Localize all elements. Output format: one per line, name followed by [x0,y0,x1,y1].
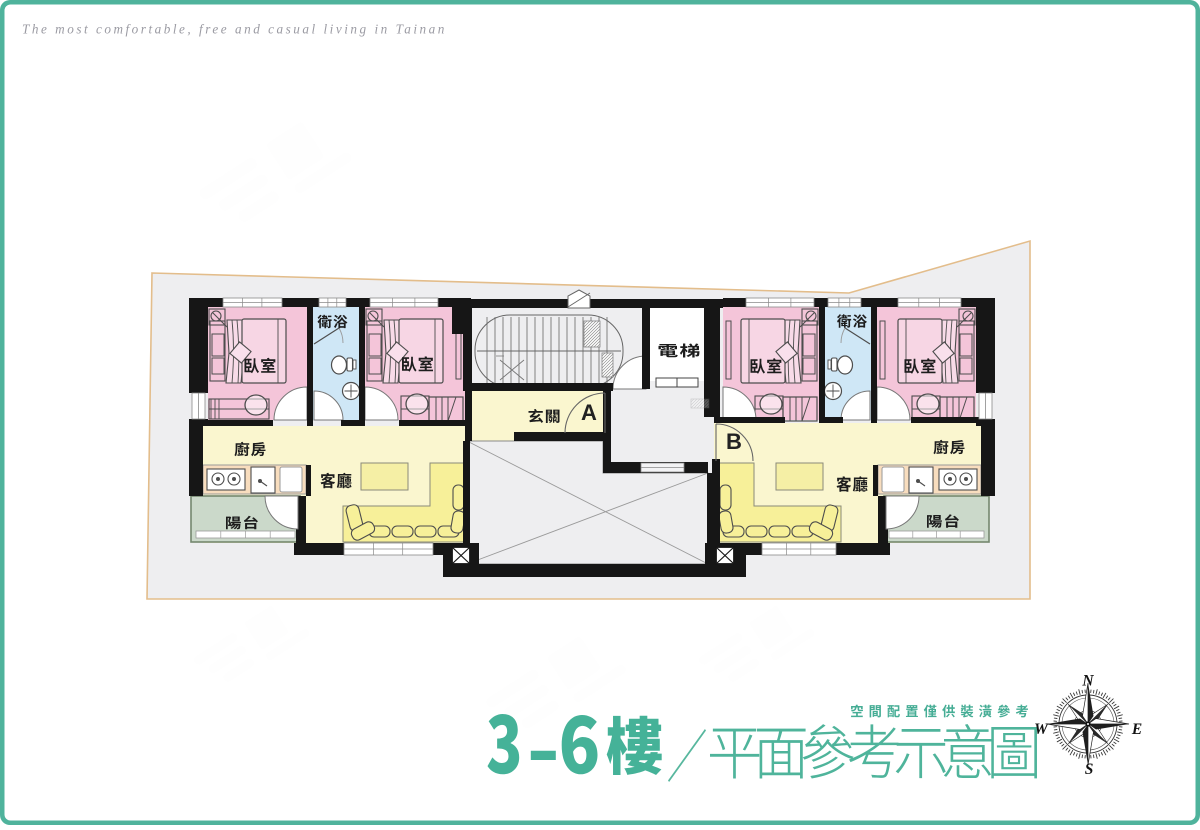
svg-text:B: B [726,429,742,454]
svg-text:A: A [581,400,597,425]
svg-text:E: E [1131,721,1142,738]
svg-text:N: N [1081,673,1094,690]
svg-text:The most comfortable, free and: The most comfortable, free and casual li… [22,22,447,37]
svg-text:S: S [1085,761,1094,778]
svg-text:W: W [1034,721,1049,738]
